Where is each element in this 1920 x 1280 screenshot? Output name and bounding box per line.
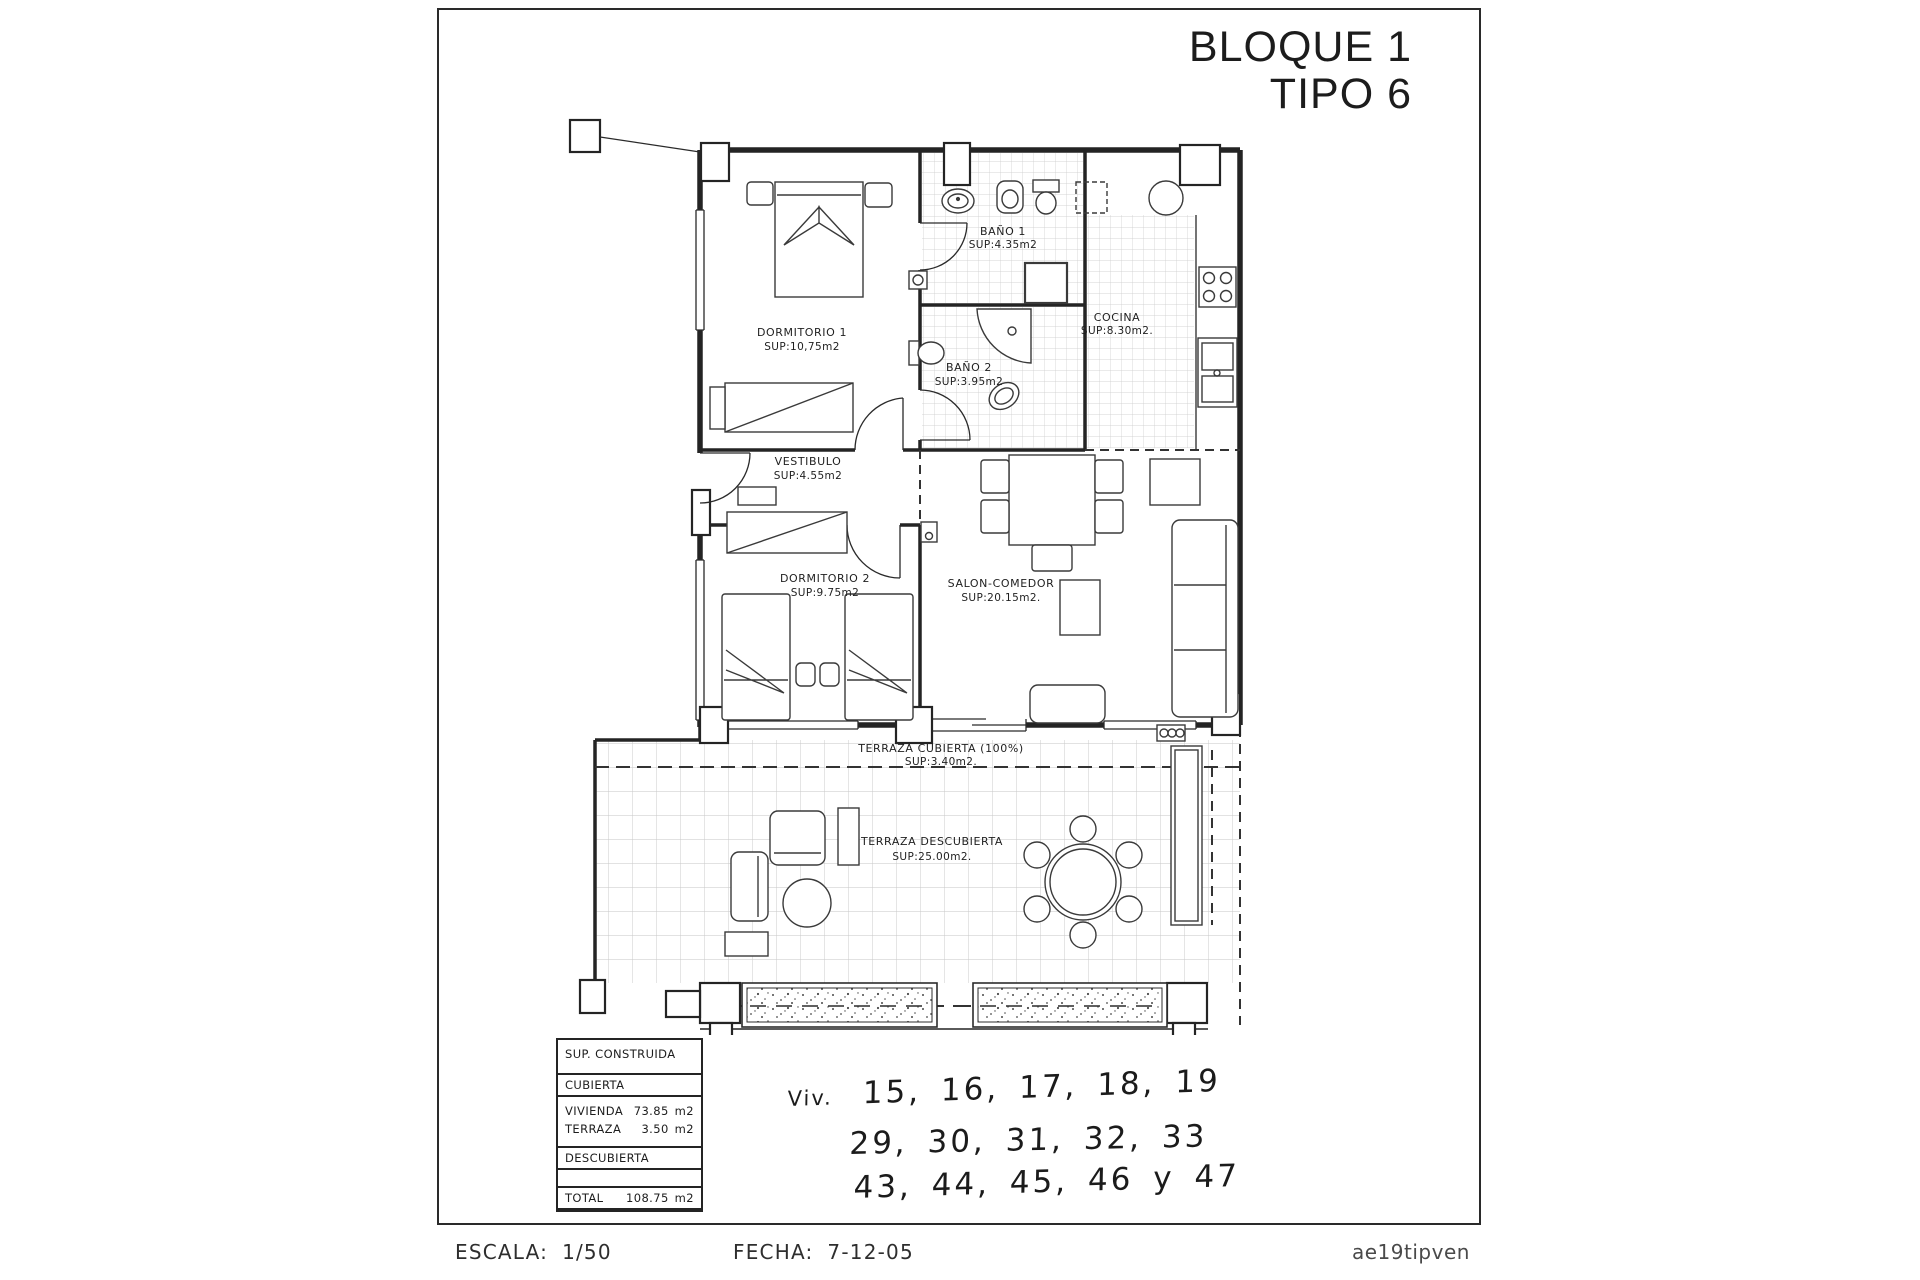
row-value: 3.50 — [641, 1122, 668, 1136]
floor-plan-svg: DORMITORIO 1 SUP:10,75m2 BAÑO 1 SUP:4.35… — [560, 95, 1280, 1035]
setback-line — [600, 137, 700, 152]
area-table-section-cubierta: CUBIERTA — [558, 1075, 701, 1097]
chair — [1070, 816, 1096, 842]
nightstand — [796, 663, 815, 686]
single-bed — [845, 594, 913, 720]
chair — [1024, 896, 1050, 922]
planter-box — [838, 808, 859, 865]
row-unit: m2 — [675, 1122, 694, 1136]
total-unit: m2 — [675, 1191, 694, 1205]
area-table-header: SUP. CONSTRUIDA — [558, 1040, 701, 1075]
title-line-1: BLOQUE 1 — [1080, 24, 1412, 71]
scale-value: 1/50 — [562, 1240, 612, 1264]
room-label-salon-comedor: SALON-COMEDOR — [948, 577, 1055, 590]
meter-box — [1157, 725, 1185, 741]
room-label-terraza-descubierta: TERRAZA DESCUBIERTA — [860, 835, 1003, 848]
sliding-door-living-terrace — [932, 719, 1026, 731]
nightstand — [865, 183, 892, 207]
row-value: 73.85 — [634, 1104, 669, 1118]
room-sup-bano-2: SUP:3.95m2 — [935, 376, 1004, 388]
room-sup-dormitorio-2: SUP:9.75m2 — [791, 587, 860, 599]
column — [692, 490, 710, 535]
area-table-total: TOTAL 108.75 m2 — [556, 1186, 703, 1210]
cooktop — [1199, 267, 1236, 307]
column — [1167, 983, 1207, 1023]
chair — [1024, 842, 1050, 868]
scale-note: ESCALA:1/50 — [455, 1240, 612, 1264]
bedroom2-furniture — [722, 512, 913, 720]
toilet — [918, 342, 944, 364]
date-label: FECHA: — [733, 1240, 813, 1264]
armchair — [770, 811, 825, 865]
round-table — [1045, 844, 1121, 920]
column-stub — [580, 980, 605, 1013]
chair — [1095, 460, 1123, 493]
total-value: 108.75 — [626, 1191, 669, 1205]
toilet — [1036, 192, 1056, 214]
hall-furniture — [738, 487, 776, 505]
room-sup-vestibulo: SUP:4.55m2 — [774, 470, 843, 482]
side-table — [783, 879, 831, 927]
title-block-footer: ESCALA:1/50 FECHA:7-12-05 ae19tipven — [0, 1240, 1920, 1270]
handwritten-line-2: 29, 30, 31, 32, 33 — [849, 1119, 1208, 1163]
window-bedroom1 — [696, 210, 704, 330]
table-row: VIVIENDA 73.85 m2 — [565, 1102, 694, 1120]
column-stub — [666, 991, 700, 1017]
column — [570, 120, 600, 152]
wardrobe-side — [710, 387, 725, 429]
row-label: TERRAZA — [565, 1122, 621, 1136]
small-sink — [909, 271, 927, 289]
total-label: TOTAL — [565, 1191, 603, 1205]
room-label-terraza-cubierta: TERRAZA CUBIERTA (100%) — [857, 742, 1024, 755]
scale-label: ESCALA: — [455, 1240, 548, 1264]
armchair — [731, 852, 768, 921]
nightstand — [820, 663, 839, 686]
column-stub — [710, 1023, 732, 1035]
armchair — [1030, 685, 1105, 723]
room-sup-terraza-descubierta: SUP:25.00m2. — [892, 851, 971, 863]
room-sup-terraza-cubierta: SUP:3.40m2. — [905, 756, 977, 768]
room-sup-bano-1: SUP:4.35m2 — [969, 239, 1038, 251]
kitchen-sink — [1198, 338, 1237, 407]
hall-cabinet — [738, 487, 776, 505]
room-label-dormitorio-1: DORMITORIO 1 — [757, 326, 847, 339]
bedroom1-furniture — [710, 182, 892, 432]
room-label-dormitorio-2: DORMITORIO 2 — [780, 572, 870, 585]
window-bedroom2-terrace — [728, 721, 858, 729]
window-bedroom2 — [696, 560, 704, 720]
chair — [981, 460, 1009, 493]
dining-table — [1009, 455, 1095, 545]
table-row: TERRAZA 3.50 m2 — [565, 1120, 694, 1138]
file-reference: ae19tipven — [1352, 1240, 1470, 1264]
area-table-cubierta-rows: VIVIENDA 73.85 m2 TERRAZA 3.50 m2 — [558, 1097, 701, 1146]
room-label-cocina: COCINA — [1094, 311, 1141, 324]
area-table-section-descubierta: DESCUBIERTA — [558, 1146, 701, 1170]
room-label-bano-2: BAÑO 2 — [946, 361, 992, 374]
single-bed — [722, 594, 790, 720]
chair — [981, 500, 1009, 533]
date-value: 7-12-05 — [827, 1240, 913, 1264]
room-label-bano-1: BAÑO 1 — [980, 225, 1026, 238]
room-sup-cocina: SUP:8.30m2. — [1081, 325, 1153, 337]
floor-plan: DORMITORIO 1 SUP:10,75m2 BAÑO 1 SUP:4.35… — [560, 95, 1280, 1035]
boiler — [1149, 181, 1183, 215]
low-table — [725, 932, 768, 956]
nightstand — [747, 182, 773, 205]
column — [701, 143, 729, 181]
room-sup-dormitorio-1: SUP:10,75m2 — [764, 341, 840, 353]
chair — [1095, 500, 1123, 533]
scanned-floor-plan-page: { "title": { "line1": "BLOQUE 1", "line2… — [0, 0, 1920, 1280]
sideboard — [1150, 459, 1200, 505]
coffee-table — [1060, 580, 1100, 635]
room-sup-salon-comedor: SUP:20.15m2. — [961, 592, 1040, 604]
column — [700, 983, 740, 1023]
bedroom2-door — [847, 525, 900, 578]
column-stub — [1173, 1023, 1195, 1035]
chair — [1116, 896, 1142, 922]
chair — [1116, 842, 1142, 868]
row-label: VIVIENDA — [565, 1104, 623, 1118]
chair — [1032, 545, 1072, 571]
row-unit: m2 — [675, 1104, 694, 1118]
chair — [1070, 922, 1096, 948]
date-note: FECHA:7-12-05 — [733, 1240, 914, 1264]
room-label-vestibulo: VESTIBULO — [775, 455, 842, 468]
bedroom1-door — [855, 398, 903, 450]
column — [1180, 145, 1220, 185]
duct-shaft — [1025, 263, 1067, 303]
sofa — [1172, 520, 1238, 717]
handwritten-prefix: Viv. — [787, 1085, 833, 1111]
column — [944, 143, 970, 185]
toilet-tank — [1033, 180, 1059, 192]
